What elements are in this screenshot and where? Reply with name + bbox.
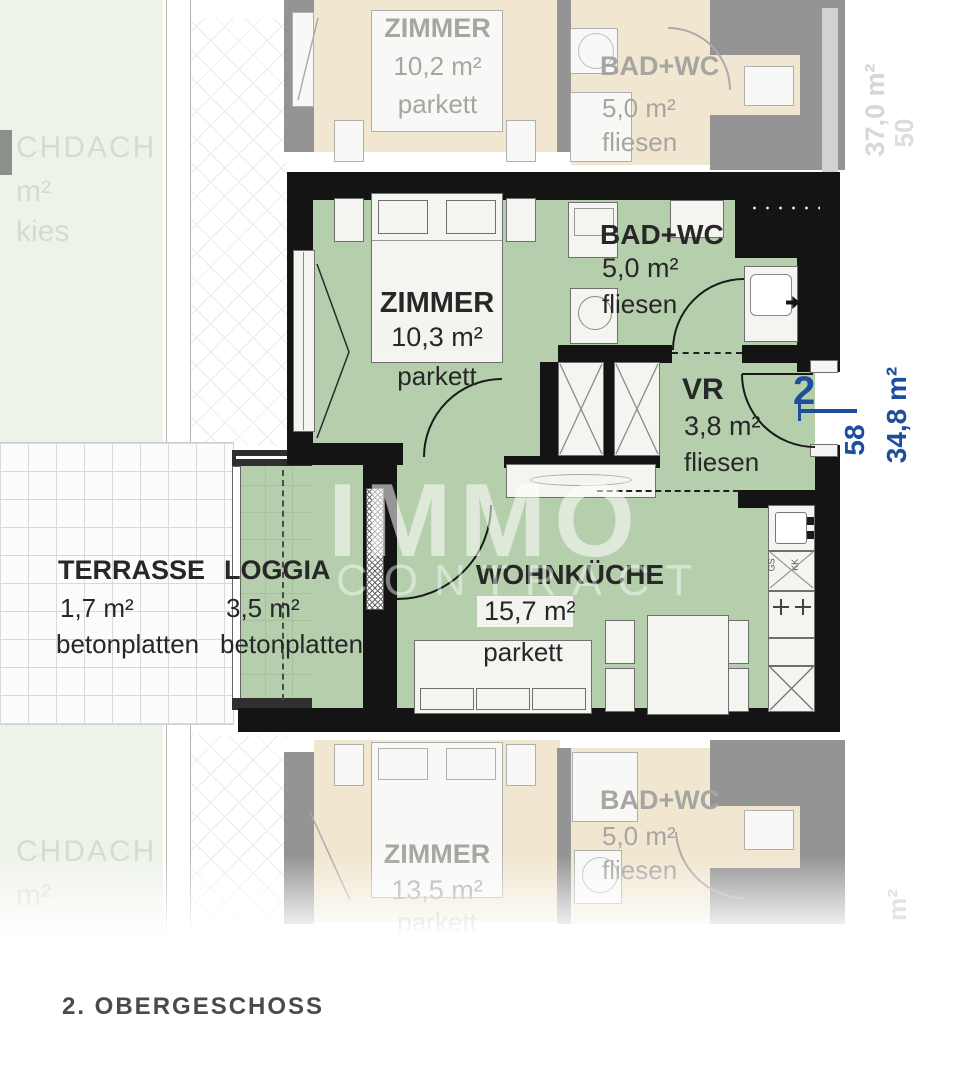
nightstand bbox=[334, 198, 364, 242]
wall-block-topright bbox=[735, 172, 840, 258]
wall-bad-vr-right bbox=[742, 345, 815, 363]
threshold-vr-wk bbox=[597, 490, 739, 492]
kitchen-divider bbox=[769, 637, 814, 639]
door-frame bbox=[810, 444, 838, 457]
upper-unit-area: 37,0 m² bbox=[861, 40, 893, 180]
room-floor-wohnkueche: parkett bbox=[468, 638, 578, 666]
blanket-line bbox=[372, 240, 502, 241]
room-name-bad: BAD+WC bbox=[600, 220, 724, 250]
kitchen-divider bbox=[769, 665, 814, 667]
pillow bbox=[378, 748, 428, 780]
nightstand bbox=[334, 744, 364, 786]
wall-wardrobe-left bbox=[540, 362, 558, 468]
chair bbox=[605, 620, 635, 664]
entrance-pointer-tick bbox=[798, 401, 801, 421]
wall-bad-vr-left bbox=[558, 345, 672, 363]
room-floor-terrasse: betonplatten bbox=[56, 630, 199, 658]
wc-bowl bbox=[750, 274, 792, 316]
kitchen-divider bbox=[769, 550, 814, 552]
kitchen-tap bbox=[807, 531, 814, 539]
wall-wardrobe-divider bbox=[604, 362, 614, 456]
room-area-vr: 3,8 m² bbox=[684, 412, 761, 441]
pillow bbox=[446, 200, 496, 234]
room-floor-loggia: betonplatten bbox=[220, 630, 363, 658]
wardrobe bbox=[558, 362, 604, 456]
unit-total-area: 34,8 m² bbox=[882, 355, 916, 475]
sofa-cushion bbox=[476, 688, 530, 710]
sofa-cushion bbox=[420, 688, 474, 710]
lower-unit-area-fragment: m² bbox=[883, 875, 913, 935]
entrance-pointer-line bbox=[800, 409, 857, 413]
sideboard-detail bbox=[530, 474, 632, 486]
nightstand bbox=[506, 198, 536, 242]
nightstand bbox=[506, 744, 536, 786]
room-name-zimmer: ZIMMER bbox=[352, 288, 522, 319]
kitchen-tap bbox=[807, 517, 814, 525]
wall-dots bbox=[748, 204, 820, 213]
sofa-cushion bbox=[532, 688, 586, 710]
room-floor-vr: fliesen bbox=[684, 448, 759, 476]
wardrobe bbox=[614, 362, 660, 456]
kitchen-sink bbox=[775, 512, 807, 544]
room-area-zimmer: 10,3 m² bbox=[374, 322, 500, 353]
room-area-bad: 5,0 m² bbox=[602, 254, 679, 283]
zimmer-window-line bbox=[303, 252, 304, 430]
wall-right-lower bbox=[815, 445, 840, 732]
floor-title: 2. OBERGESCHOSS bbox=[62, 994, 324, 1020]
chair bbox=[605, 668, 635, 712]
pillow bbox=[446, 748, 496, 780]
room-name-wohnkueche: WOHNKÜCHE bbox=[455, 560, 685, 590]
floorplan-page: CHDACH m² kies CHDACH m² ZIMMER 10,2 m² … bbox=[0, 0, 953, 1080]
unit-number: 2 bbox=[793, 370, 815, 413]
door-number: 58 bbox=[840, 415, 870, 465]
room-name-loggia: LOGGIA bbox=[224, 556, 331, 585]
pillow bbox=[378, 200, 428, 234]
zimmer-window bbox=[293, 250, 315, 432]
kitchen-label-kk: KK bbox=[791, 559, 801, 571]
wc bbox=[744, 810, 794, 850]
room-area-wohnkueche: 15,7 m² bbox=[477, 596, 573, 627]
loggia-glazed-door bbox=[366, 488, 384, 610]
room-area: 5,0 m² bbox=[602, 822, 676, 850]
room-area-loggia: 3,5 m² bbox=[226, 594, 300, 622]
upper-unit-number: 50 bbox=[890, 103, 920, 163]
room-area-terrasse: 1,7 m² bbox=[60, 594, 134, 622]
dining-table bbox=[647, 615, 729, 715]
threshold-bad-vr bbox=[672, 352, 742, 354]
kitchen-label-gs: GS bbox=[768, 558, 778, 571]
kitchen-divider bbox=[769, 590, 814, 592]
room-name: BAD+WC bbox=[600, 786, 719, 815]
room-name-terrasse: TERRASSE bbox=[58, 556, 205, 585]
room-floor-zimmer: parkett bbox=[372, 362, 502, 390]
room-floor-bad: fliesen bbox=[602, 290, 677, 318]
room-name-vr: VR bbox=[682, 374, 724, 406]
